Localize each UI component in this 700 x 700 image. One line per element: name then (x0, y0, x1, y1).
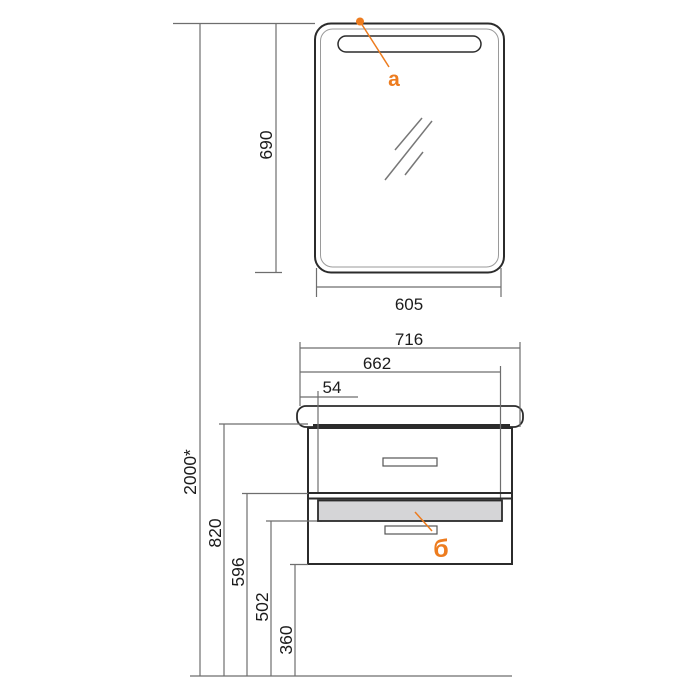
dim-mirror-width: 605 (395, 295, 423, 314)
dim-cabinet-top-height: 820 (205, 518, 225, 547)
dim-side-offset: 54 (323, 378, 342, 397)
callout-b-label: б (433, 535, 448, 563)
callout-a-leader (360, 22, 389, 68)
mirror-inner-frame (321, 29, 499, 267)
callout-a-label: a (388, 68, 400, 91)
cabinet-body (308, 428, 512, 564)
dim-install-height: 2000* (180, 449, 200, 495)
dimension-lines (173, 24, 520, 677)
lower-drawer-front (318, 501, 502, 522)
callout-a-dot (356, 18, 364, 26)
mirror-reflection-lines (385, 118, 432, 180)
dim-divider-height: 596 (228, 557, 248, 586)
dim-drawer-bottom-height: 502 (252, 592, 272, 621)
dim-mirror-height: 690 (256, 130, 276, 159)
mirror-outline (315, 24, 504, 273)
countertop (297, 406, 523, 427)
dim-cabinet-bottom-height: 360 (276, 625, 296, 654)
upper-drawer-handle (383, 458, 437, 466)
dim-total-width: 716 (395, 330, 423, 349)
technical-drawing: a б 2000* 820 596 502 360 690 605 716 66… (0, 0, 700, 700)
mirror-lamp (338, 36, 481, 52)
dim-body-width: 662 (363, 354, 391, 373)
drawing-canvas: a б 2000* 820 596 502 360 690 605 716 66… (0, 0, 700, 700)
